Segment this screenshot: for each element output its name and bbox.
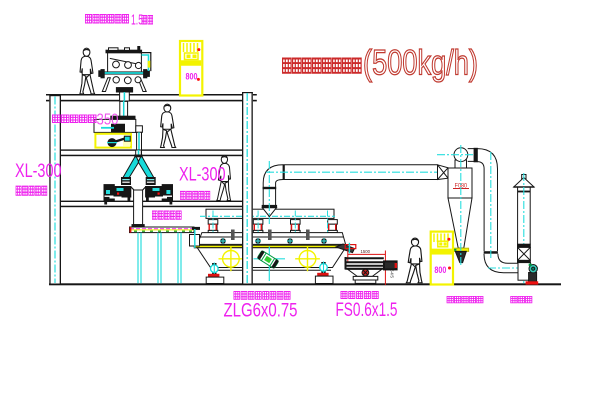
svg-text:XL-300: XL-300 — [179, 164, 226, 186]
svg-text:(500kg/h): (500kg/h) — [363, 44, 478, 83]
svg-text:ZLG6x0.75: ZLG6x0.75 — [224, 300, 298, 322]
svg-text:FS0.6x1.5: FS0.6x1.5 — [336, 299, 398, 321]
svg-text:350: 350 — [97, 112, 119, 129]
svg-text:1.5: 1.5 — [131, 12, 143, 29]
svg-text:800: 800 — [434, 265, 446, 275]
svg-text:XL-300: XL-300 — [15, 160, 62, 182]
svg-text:1500: 1500 — [361, 249, 371, 254]
svg-text:800: 800 — [186, 72, 198, 83]
